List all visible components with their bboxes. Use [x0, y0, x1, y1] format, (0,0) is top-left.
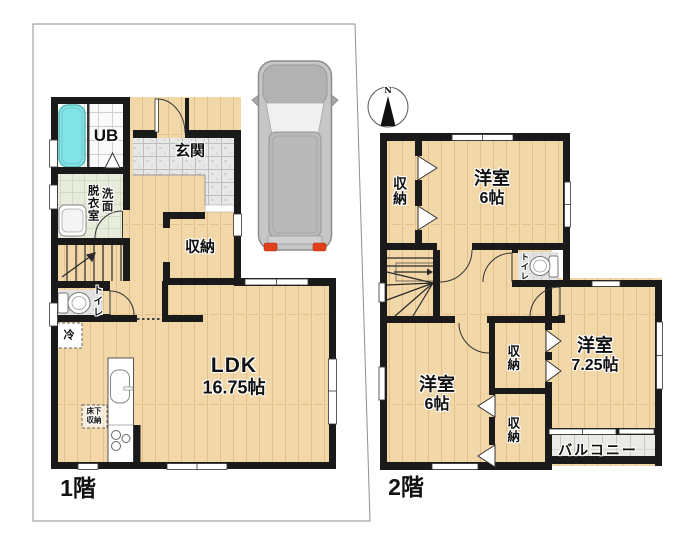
room-label-bedroom-right-size: 7.25帖: [571, 357, 618, 375]
room-label-toilet-1f: トイレ: [90, 285, 102, 318]
toilet-fixture-2f: [530, 256, 558, 277]
floorplan-graphics: [0, 0, 692, 548]
floor1-title: 1階: [60, 475, 96, 501]
toilet-fixture-1f: [58, 293, 90, 314]
room-label-bedroom-right: 洋室: [577, 336, 613, 357]
car-top-view: [252, 61, 338, 251]
room-label-bedroom-top: 洋室: [474, 169, 510, 190]
room-label-toilet-2f: トイレ: [519, 253, 529, 282]
kitchen-counter: [108, 358, 134, 463]
floor2-title: 2階: [388, 474, 424, 500]
room-label-ldk: LDK: [211, 354, 257, 378]
room-label-ldk-size: 16.75帖: [202, 378, 265, 399]
room-label-bedroom-left: 洋室: [419, 375, 455, 396]
room-label-balcony: バルコニー: [558, 442, 638, 458]
room-label-closet-mid: 収納: [505, 345, 519, 372]
label-fridge: 冷: [64, 330, 75, 343]
room-label-storage-1f: 収納: [185, 238, 215, 255]
floorplan-canvas: UB 玄関 脱衣室 洗面 収納 トイレ 冷 床下 収納 LDK 16.75帖 1…: [0, 0, 692, 548]
room-label-entrance: 玄関: [175, 142, 205, 159]
compass-north-label: N: [384, 87, 392, 97]
room-label-bedroom-left-size: 6帖: [425, 396, 450, 414]
room-label-closet-low: 収納: [505, 417, 519, 444]
label-underfloor-storage-2: 収納: [87, 417, 102, 426]
room-label-closet-top: 収納: [392, 176, 408, 206]
room-label-bedroom-top-size: 6帖: [480, 190, 505, 208]
room-label-dressing-room: 脱衣室: [85, 184, 98, 222]
room-label-unit-bath: UB: [94, 126, 119, 146]
room-label-washroom: 洗面: [99, 188, 112, 213]
washroom-sink: [59, 205, 86, 236]
bathtub: [59, 105, 85, 167]
floor2-plan: [379, 133, 663, 470]
